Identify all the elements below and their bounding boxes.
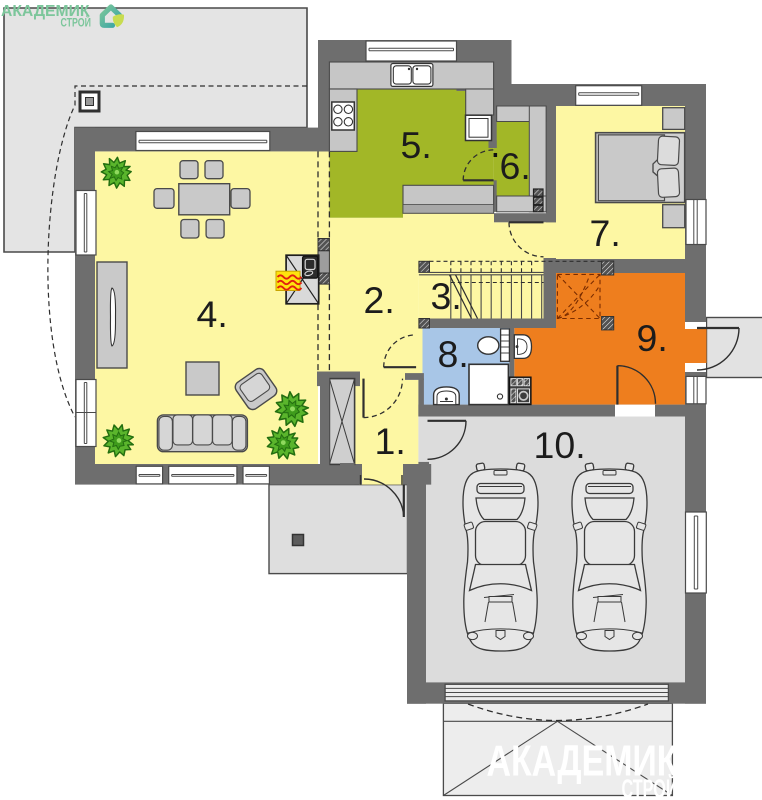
svg-text:10.: 10. — [534, 424, 586, 466]
svg-text:СТРОЙ: СТРОЙ — [61, 17, 92, 30]
svg-text:4.: 4. — [197, 293, 228, 335]
svg-text:7.: 7. — [590, 212, 621, 254]
svg-text:2.: 2. — [364, 279, 395, 321]
svg-text:5.: 5. — [401, 124, 432, 166]
svg-text:3.: 3. — [431, 275, 462, 317]
svg-text:6.: 6. — [500, 145, 531, 187]
svg-text:9.: 9. — [637, 317, 668, 359]
svg-text:СТРОЙ: СТРОЙ — [622, 774, 678, 800]
svg-text:8.: 8. — [438, 333, 469, 375]
svg-text:1.: 1. — [375, 420, 406, 462]
